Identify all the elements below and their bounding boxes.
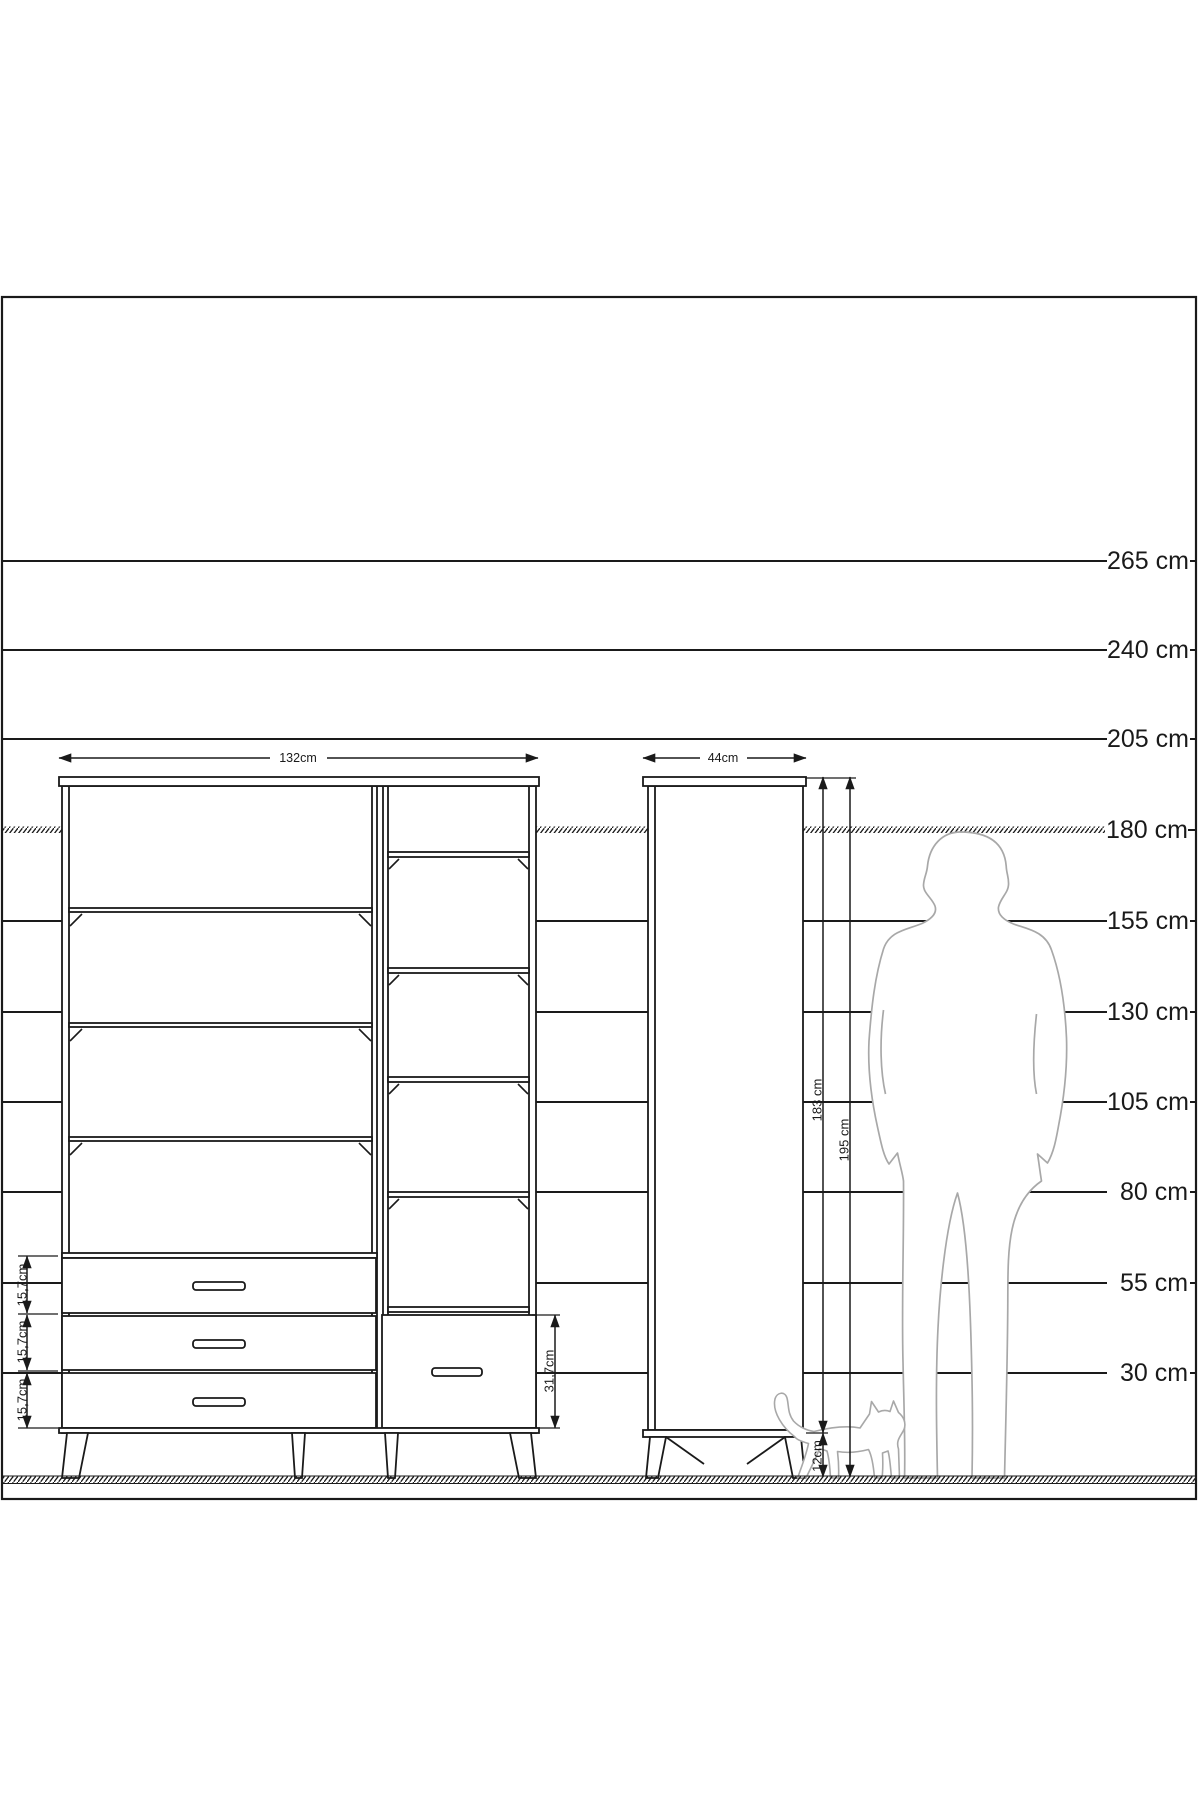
- scale-label: 30 cm: [1120, 1359, 1188, 1387]
- scale-label: 265 cm: [1107, 547, 1189, 575]
- cabinet-top-board: [59, 777, 539, 786]
- scale-label: 80 cm: [1120, 1178, 1188, 1206]
- shelf: [69, 1137, 372, 1141]
- side-cabinet-body: [648, 786, 803, 1430]
- dimension-label-drawer-1: 15,7cm: [15, 1264, 30, 1307]
- drawer-handle: [193, 1340, 245, 1348]
- furniture-dimension-drawing: 265 cm 240 cm 205 cm 180 cm 155 cm 130 c…: [0, 0, 1200, 1800]
- dimension-label-right-drawer: 31,7cm: [542, 1350, 557, 1393]
- drawer-handle: [432, 1368, 482, 1376]
- floor-line: [2, 1476, 1196, 1484]
- dimension-label-leg-height: 12cm: [810, 1440, 825, 1472]
- dimension-label-side-width: 44cm: [708, 751, 739, 765]
- shelf: [388, 1192, 529, 1197]
- drawing-canvas: 265 cm 240 cm 205 cm 180 cm 155 cm 130 c…: [0, 0, 1200, 1800]
- side-cabinet-side-view: [643, 777, 806, 1478]
- main-cabinet-front-view: [59, 777, 539, 1478]
- cabinet-leg: [292, 1433, 305, 1478]
- dimension-label-total-height: 195 cm: [837, 1119, 852, 1162]
- scale-label: 205 cm: [1107, 725, 1189, 753]
- scale-label: 130 cm: [1107, 998, 1189, 1026]
- scale-label: 155 cm: [1107, 907, 1189, 935]
- shelf: [69, 1023, 372, 1027]
- dimension-label-main-width: 132cm: [279, 751, 317, 765]
- shelf: [388, 1077, 529, 1082]
- drawer-handle: [193, 1282, 245, 1290]
- dimension-label-drawer-2: 15,7cm: [15, 1321, 30, 1364]
- dimension-label-body-height: 183 cm: [810, 1079, 825, 1122]
- shelf: [388, 852, 529, 857]
- shelf: [69, 908, 372, 912]
- side-cabinet-top-board: [643, 777, 806, 786]
- shelf: [388, 1307, 529, 1312]
- floor-hatch: [2, 1476, 1196, 1484]
- cabinet-leg: [385, 1433, 398, 1478]
- side-cabinet-bottom-board: [643, 1430, 806, 1437]
- scale-label: 55 cm: [1120, 1269, 1188, 1297]
- dimension-label-drawer-3: 15,7cm: [15, 1379, 30, 1422]
- scale-label: 240 cm: [1107, 636, 1189, 664]
- shelf: [388, 968, 529, 973]
- scale-label: 180 cm: [1106, 816, 1188, 844]
- drawer-handle: [193, 1398, 245, 1406]
- scale-label: 105 cm: [1107, 1088, 1189, 1116]
